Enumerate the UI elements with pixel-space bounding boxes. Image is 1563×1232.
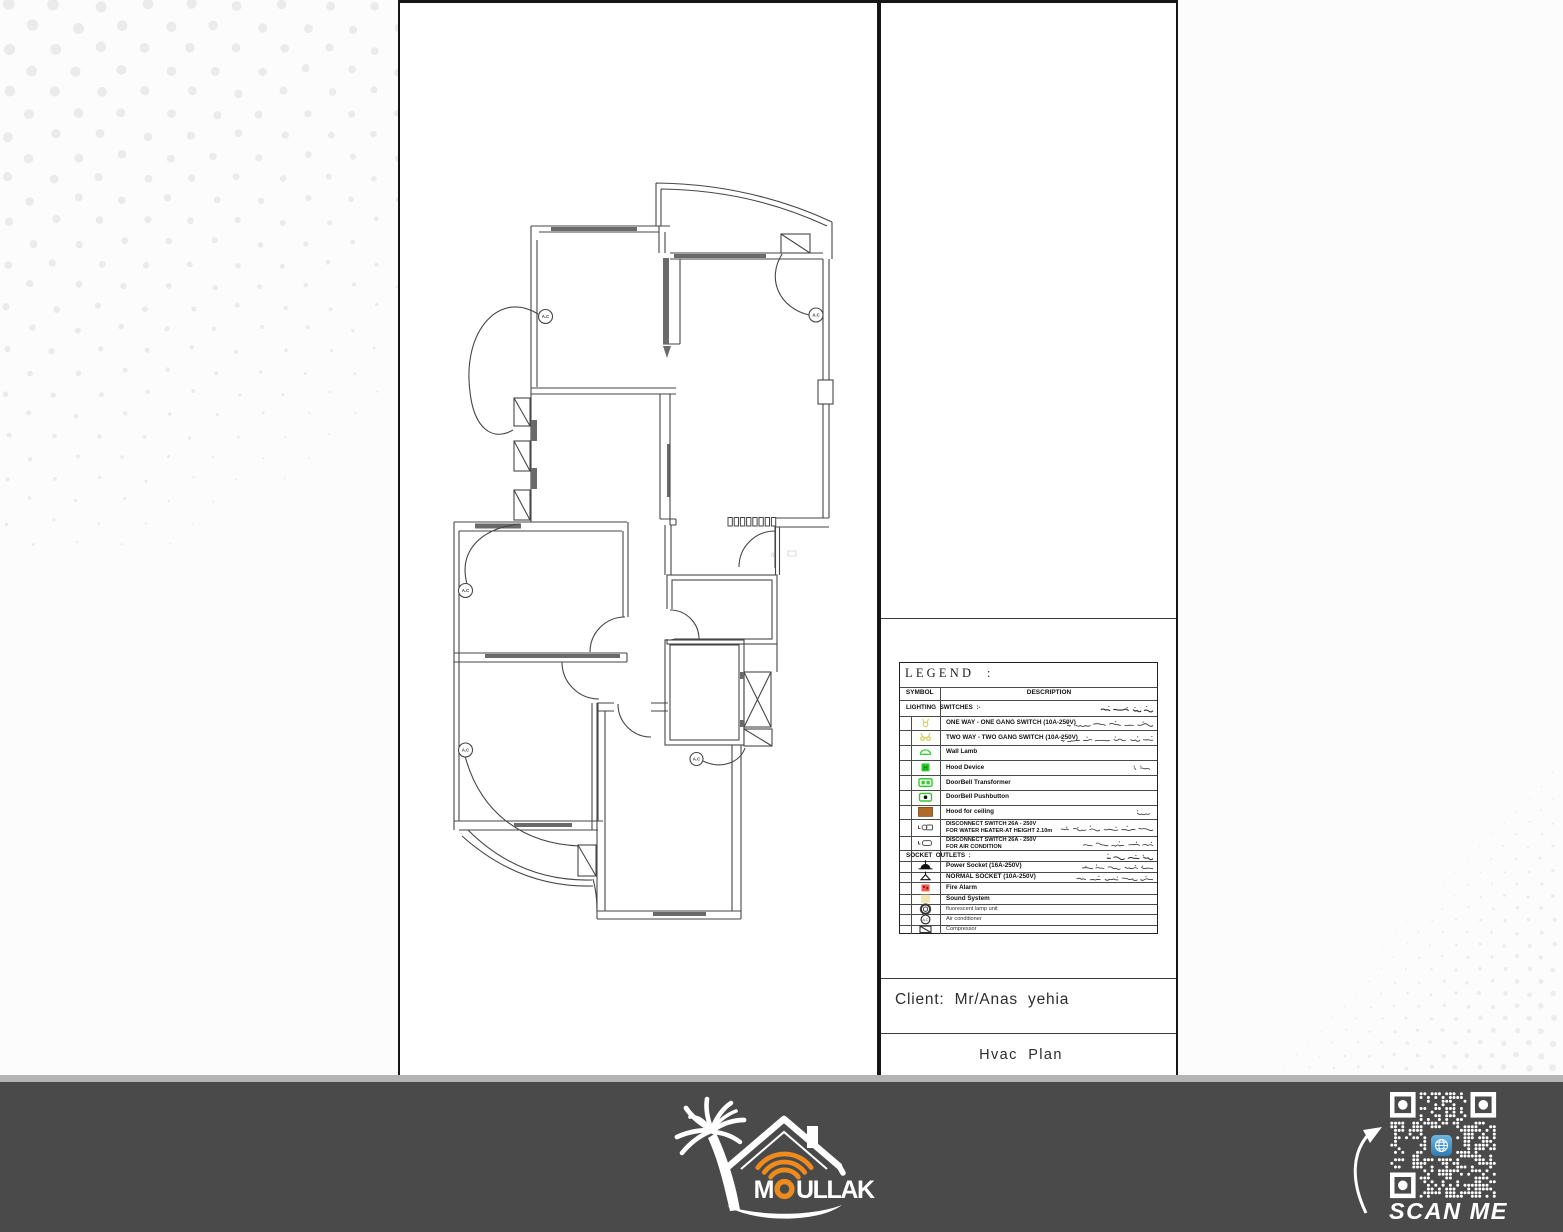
svg-text:A.C: A.C	[462, 748, 469, 753]
svg-text:A.C: A.C	[462, 588, 469, 593]
svg-text:H: H	[923, 765, 928, 772]
svg-text:M: M	[754, 1176, 775, 1204]
svg-text:A.C: A.C	[542, 314, 549, 319]
svg-text:8: 8	[771, 553, 775, 559]
svg-text:A.C: A.C	[693, 757, 700, 762]
svg-text:A.C: A.C	[812, 313, 819, 318]
svg-text:ULLAK: ULLAK	[796, 1176, 875, 1204]
svg-text:A.C: A.C	[923, 918, 929, 922]
